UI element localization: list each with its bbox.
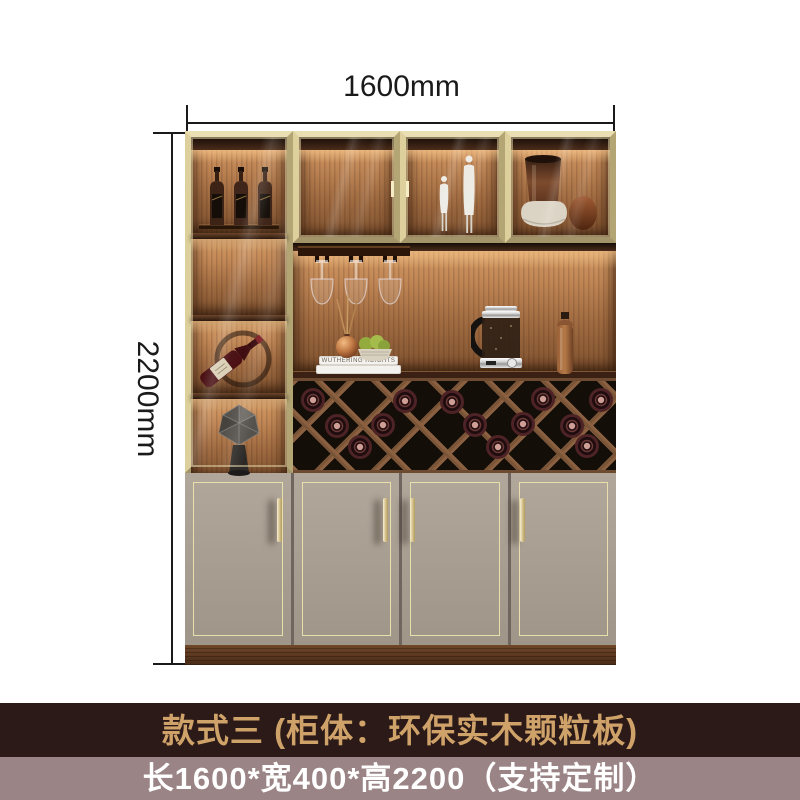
- width-dimension-tick-right: [613, 105, 615, 132]
- glass-door-frame: [299, 137, 394, 237]
- height-dimension-line: [171, 133, 173, 665]
- door-handle: [520, 498, 525, 542]
- product-image-page: 1600mm 2200mm: [0, 0, 800, 800]
- lower-cabinet-doors: [185, 473, 616, 645]
- door-handle: [277, 498, 282, 542]
- electric-kettle: [471, 304, 531, 374]
- plinth-base: [185, 645, 616, 665]
- copper-flask: [553, 312, 577, 374]
- width-dimension-label: 1600mm: [187, 70, 616, 104]
- cabinet-door-3: [402, 473, 508, 645]
- wine-bottle-ends: [293, 378, 616, 473]
- door-gold-trim: [519, 482, 609, 636]
- width-dimension-line: [187, 122, 615, 124]
- cabinet-door-4: [511, 473, 617, 645]
- glass-door-handle: [406, 181, 409, 197]
- width-dimension-tick-left: [186, 105, 188, 132]
- size-banner: 长1600*宽400*高2200（支持定制）: [0, 757, 800, 800]
- left-glass-display-cabinet: [185, 131, 293, 473]
- size-banner-text: 长1600*宽400*高2200（支持定制）: [143, 761, 658, 796]
- wine-cabinet-illustration: WUTHERING HEIGHTS: [185, 131, 616, 665]
- glass-door-handle: [391, 181, 394, 197]
- door-gold-trim: [302, 482, 392, 636]
- top-display-cabinet-vases: [505, 131, 616, 243]
- height-dimension-label: 2200mm: [130, 341, 164, 458]
- glass-door-frame: [406, 137, 499, 237]
- open-shelf-niche: WUTHERING HEIGHTS: [293, 243, 616, 371]
- height-dimension-tick-top: [153, 132, 187, 134]
- door-handle: [410, 498, 415, 542]
- door-gold-trim: [410, 482, 500, 636]
- style-banner-text: 款式三 (柜体：环保实木颗粒板): [162, 712, 638, 749]
- glass-door-frame: [511, 137, 610, 237]
- height-dimension-tick-bottom: [153, 663, 187, 665]
- glass-door-frame: [191, 137, 287, 467]
- top-display-cabinet-empty: [293, 131, 400, 243]
- door-handle: [383, 498, 388, 542]
- fruit-bowl: [355, 333, 395, 361]
- cabinet-door-1: [185, 473, 291, 645]
- top-display-cabinet-figurines: [400, 131, 505, 243]
- book-spine-plain: [316, 365, 401, 374]
- style-banner: 款式三 (柜体：环保实木颗粒板): [0, 703, 800, 757]
- door-gold-trim: [193, 482, 283, 636]
- diamond-wine-rack: [293, 378, 616, 473]
- cabinet-door-2: [294, 473, 400, 645]
